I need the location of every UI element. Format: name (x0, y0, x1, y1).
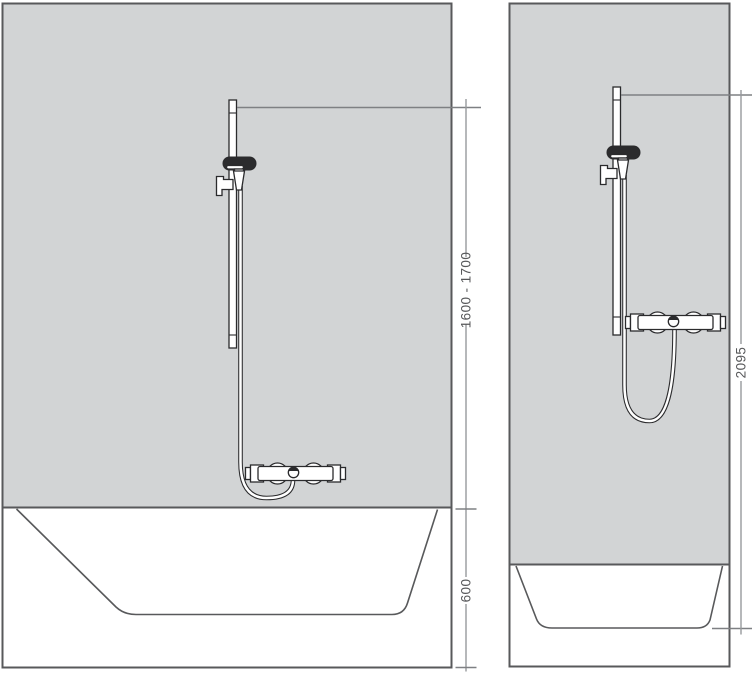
thermostat-mixer-right (626, 312, 726, 333)
bathtub-inner-profile (17, 509, 438, 615)
handle-cap-left (246, 468, 251, 480)
dimension-label-total-height: 2095 (734, 347, 749, 379)
bathtub-installation-diagram: 1600 - 1700 600 (3, 4, 482, 672)
handle-cap-right (341, 468, 346, 480)
dimension-label-basin-height: 600 (459, 579, 474, 603)
handle-cap-left (626, 317, 631, 329)
shower-tray-inner-profile (516, 566, 723, 628)
bathtub-wall-panel (3, 4, 452, 508)
shower-installation-diagram: 2095 (510, 4, 753, 667)
wall-bar (229, 100, 237, 348)
technical-drawing-canvas: 1600 - 1700 600 (0, 0, 754, 675)
wall-bar (613, 87, 621, 335)
installation-drawing: 1600 - 1700 600 (0, 0, 754, 675)
thermostat-mixer-left (246, 463, 346, 484)
dimension-label-bar-height-range: 1600 - 1700 (459, 252, 474, 328)
handle-cap-right (721, 317, 726, 329)
